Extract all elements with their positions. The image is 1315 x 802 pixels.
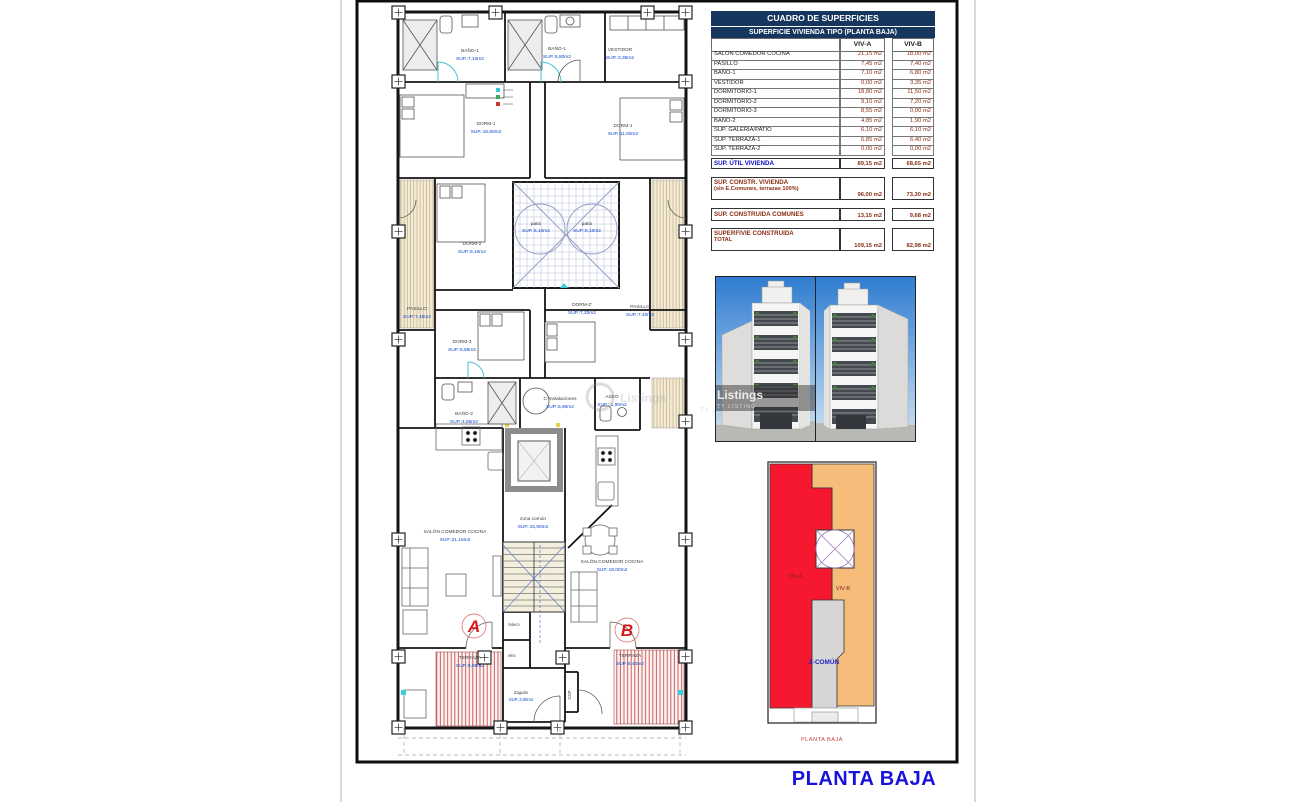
staircase [503, 542, 565, 645]
room-label-bano1-b: BAÑO-1SUP.:6,80m2 [543, 45, 571, 60]
summary-total: SUPERFIVIE CONSTRUIDATOTAL 109,15 m2 82,… [711, 228, 935, 251]
sink-icon [462, 15, 478, 27]
svg-text:BAÑO-1: BAÑO-1 [548, 45, 566, 52]
galeria-strip [400, 180, 434, 328]
svg-text:SUP.:5,90m2: SUP.:5,90m2 [546, 404, 574, 410]
svg-text:patio: patio [531, 221, 542, 227]
svg-text:SUP.:15,90m2: SUP.:15,90m2 [518, 524, 549, 530]
keyplan-caption: PLANTA BAJA [801, 737, 843, 743]
svg-text:PASILLO: PASILLO [407, 306, 427, 312]
floor-plan: BAÑO-1SUP.:7,10m2 BAÑO-1SUP.:6,80m2 VEST… [392, 6, 743, 755]
surfaces-table: CUADRO DE SUPERFICIES SUPERFICIE VIVIEND… [711, 11, 935, 251]
shower-icon [508, 20, 542, 70]
bed-icon [620, 98, 684, 160]
toilet-icon [442, 384, 454, 400]
patio-skylight [513, 182, 619, 288]
sink-icon [458, 382, 472, 392]
keyplan-viv-b-label: VIV-B [836, 586, 851, 592]
svg-text:TY LISTING: TY LISTING [717, 404, 756, 410]
table-icon [446, 574, 466, 596]
room-label-dorm2-a: DORM-2SUP.:9,10m2 [458, 241, 486, 255]
armchair-icon [403, 610, 427, 634]
bed-icon [545, 322, 595, 362]
toilet-icon [440, 16, 452, 33]
svg-text:DORM-1: DORM-1 [477, 121, 496, 127]
room-label-dorm3: DORM-3SUP.:8,55m2 [448, 339, 476, 353]
key-plan: VIV-A VIV-B Z-COMÚN PLANTA BAJA [768, 462, 876, 743]
summary-util: SUP. ÚTIL VIVIENDA 89,15 m2 68,65 m2 [711, 158, 935, 169]
svg-text:DORM-2': DORM-2' [572, 302, 592, 308]
bed-icon [400, 95, 464, 157]
svg-text:DORM-3: DORM-3 [453, 339, 472, 345]
svg-text:SUP.:3,00m2: SUP.:3,00m2 [509, 697, 534, 702]
svg-text:teleco: teleco [508, 622, 520, 627]
room-label-salon-b: SALÓN COMEDOR COCINASUP.:18,00m2 [581, 558, 644, 573]
room-label-zonacomun: zona comúnSUP.:15,90m2 [518, 516, 549, 530]
scanned-plan-sheet: BAÑO-1SUP.:7,10m2 BAÑO-1SUP.:6,80m2 VEST… [0, 0, 1315, 802]
shower-icon [403, 20, 437, 70]
svg-text:Zaguán: Zaguán [514, 690, 529, 695]
storage-icon [404, 690, 426, 718]
svg-text:SUP.:9,10m2: SUP.:9,10m2 [458, 249, 486, 255]
toilet-icon [545, 16, 557, 33]
sink-icon [598, 482, 614, 500]
svg-text:SUP.:7,20m2: SUP.:7,20m2 [568, 310, 596, 316]
shower-icon [488, 382, 516, 424]
sofa-icon [571, 572, 597, 622]
svg-text:DORM-1: DORM-1 [614, 123, 633, 129]
svg-text:SALÓN COMEDOR COCINA: SALÓN COMEDOR COCINA [581, 558, 644, 565]
svg-text:DORM-2: DORM-2 [463, 241, 482, 247]
svg-text:Listings: Listings [620, 391, 666, 405]
svg-text:A: A [467, 617, 480, 636]
svg-text:patio: patio [582, 221, 593, 227]
svg-text:B: B [621, 621, 633, 640]
svg-text:BAÑO-1: BAÑO-1 [461, 47, 479, 54]
svg-text:SUP.:6,10m2: SUP.:6,10m2 [522, 228, 550, 234]
svg-text:SUP.:6,80m2: SUP.:6,80m2 [543, 54, 571, 60]
sheet-title: PLANTA BAJA [784, 768, 944, 791]
svg-text:SUP.:21,15m2: SUP.:21,15m2 [440, 537, 471, 543]
tv-unit-icon [493, 556, 501, 596]
door-letters: A B [462, 614, 639, 642]
summary-constr-vivienda: SUP. CONSTR. VIVIENDA(sin E.Comunes, ter… [711, 177, 935, 200]
svg-text:SALÓN COMEDOR COCINA: SALÓN COMEDOR COCINA [424, 528, 487, 535]
elevator-shaft [505, 423, 560, 489]
room-label-bano2: BAÑO-2SUP.:4,85m2 [450, 410, 478, 425]
svg-text:PASILLO: PASILLO [630, 304, 650, 310]
svg-text:SUP.:18,00m2: SUP.:18,00m2 [597, 567, 628, 573]
summary-comunes: SUP. CONSTRUIDA COMUNES 13,15 m2 9,68 m2 [711, 208, 935, 220]
svg-text:TERRAZA: TERRAZA [619, 653, 642, 659]
room-label-dorm1-a: DORM-1SUP.:18,80m2 [471, 121, 502, 135]
building-render-right [816, 277, 915, 441]
svg-text:Listings: Listings [717, 388, 763, 402]
room-label-bano1-a: BAÑO-1SUP.:7,10m2 [456, 47, 484, 62]
svg-text:C-Instalaciones: C-Instalaciones [543, 396, 577, 402]
svg-text:BAÑO-2: BAÑO-2 [455, 410, 473, 417]
sofa-icon [402, 548, 428, 606]
floor-plan-drawing: BAÑO-1SUP.:7,10m2 BAÑO-1SUP.:6,80m2 VEST… [0, 0, 1315, 802]
svg-text:SUP.:7,45m2: SUP.:7,45m2 [403, 314, 431, 320]
room-label-dorm2p: DORM-2'SUP.:7,20m2 [568, 302, 596, 316]
building-render-left: Listings TY LISTING [716, 277, 815, 441]
stove-icon [462, 427, 480, 445]
svg-text:SUP.:6,10m2: SUP.:6,10m2 [573, 228, 601, 234]
utilities-legend [496, 88, 513, 106]
dining-table-icon [583, 525, 617, 555]
svg-text:elec: elec [508, 653, 516, 658]
sink-icon [488, 452, 503, 470]
sidewalk-dashes [398, 728, 686, 755]
table-subtitle: SUPERFICIE VIVIENDA TIPO (PLANTA BAJA) [711, 27, 935, 38]
svg-text:SUP.:18,80m2: SUP.:18,80m2 [471, 129, 502, 135]
svg-text:SUP.:4,85m2: SUP.:4,85m2 [450, 419, 478, 425]
keyplan-viv-a-label: VIV-A [788, 574, 803, 580]
svg-text:SUP.:6,40m2: SUP.:6,40m2 [616, 661, 644, 667]
room-label-vestidor: VESTIDORSUP.:3,35m2 [606, 47, 634, 61]
svg-text:zona común: zona común [520, 516, 546, 522]
svg-text:SUP.:8,55m2: SUP.:8,55m2 [448, 347, 476, 353]
svg-text:SUP.:7,10m2: SUP.:7,10m2 [456, 56, 484, 62]
svg-text:SUP.:11,50m2: SUP.:11,50m2 [608, 131, 639, 137]
keyplan-comun-label: Z-COMÚN [809, 657, 840, 666]
photo-watermark: Listings TY LISTING [716, 385, 815, 411]
table-row: SUP. TERRAZA-20,00 m20,00 m2 [711, 144, 935, 155]
bed-icon [478, 312, 524, 360]
stove-icon [598, 448, 615, 465]
room-label-salon-a: SALÓN COMEDOR COCINASUP.:21,15m2 [424, 528, 487, 543]
svg-text:VESTIDOR: VESTIDOR [608, 47, 633, 53]
table-title: CUADRO DE SUPERFICIES [711, 11, 935, 26]
keyplan-patio [816, 530, 854, 568]
svg-text:SUP.:7,40m2: SUP.:7,40m2 [626, 312, 654, 318]
svg-text:SUP.:6,85m2: SUP.:6,85m2 [456, 663, 484, 669]
building-renders: Listings TY LISTING [715, 276, 916, 442]
bed-icon [437, 184, 485, 242]
svg-text:SUP.:3,35m2: SUP.:3,35m2 [606, 55, 634, 61]
svg-text:TERRAZA: TERRAZA [459, 655, 482, 661]
svg-text:CGP: CGP [567, 690, 572, 699]
sink-icon [618, 408, 627, 417]
